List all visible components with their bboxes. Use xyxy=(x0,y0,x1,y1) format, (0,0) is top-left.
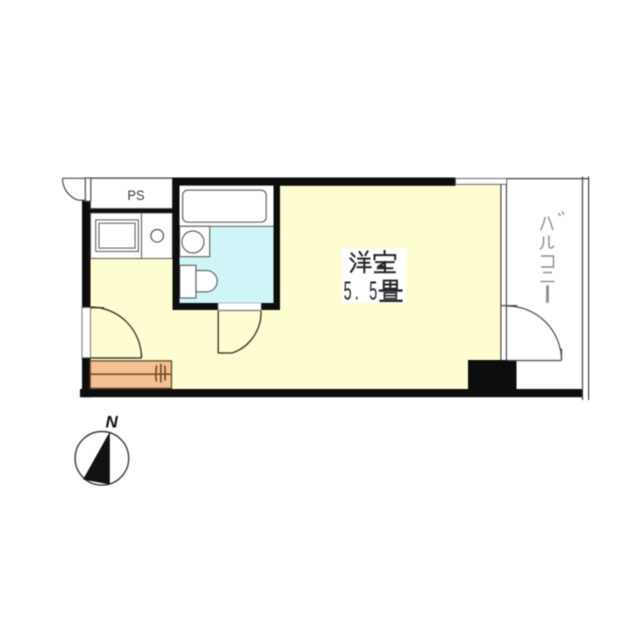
svg-text:PS: PS xyxy=(127,187,144,203)
svg-text:5: 5 xyxy=(369,277,377,306)
svg-text:5: 5 xyxy=(344,277,352,306)
svg-text:N: N xyxy=(106,413,119,432)
svg-text:.: . xyxy=(355,277,359,306)
